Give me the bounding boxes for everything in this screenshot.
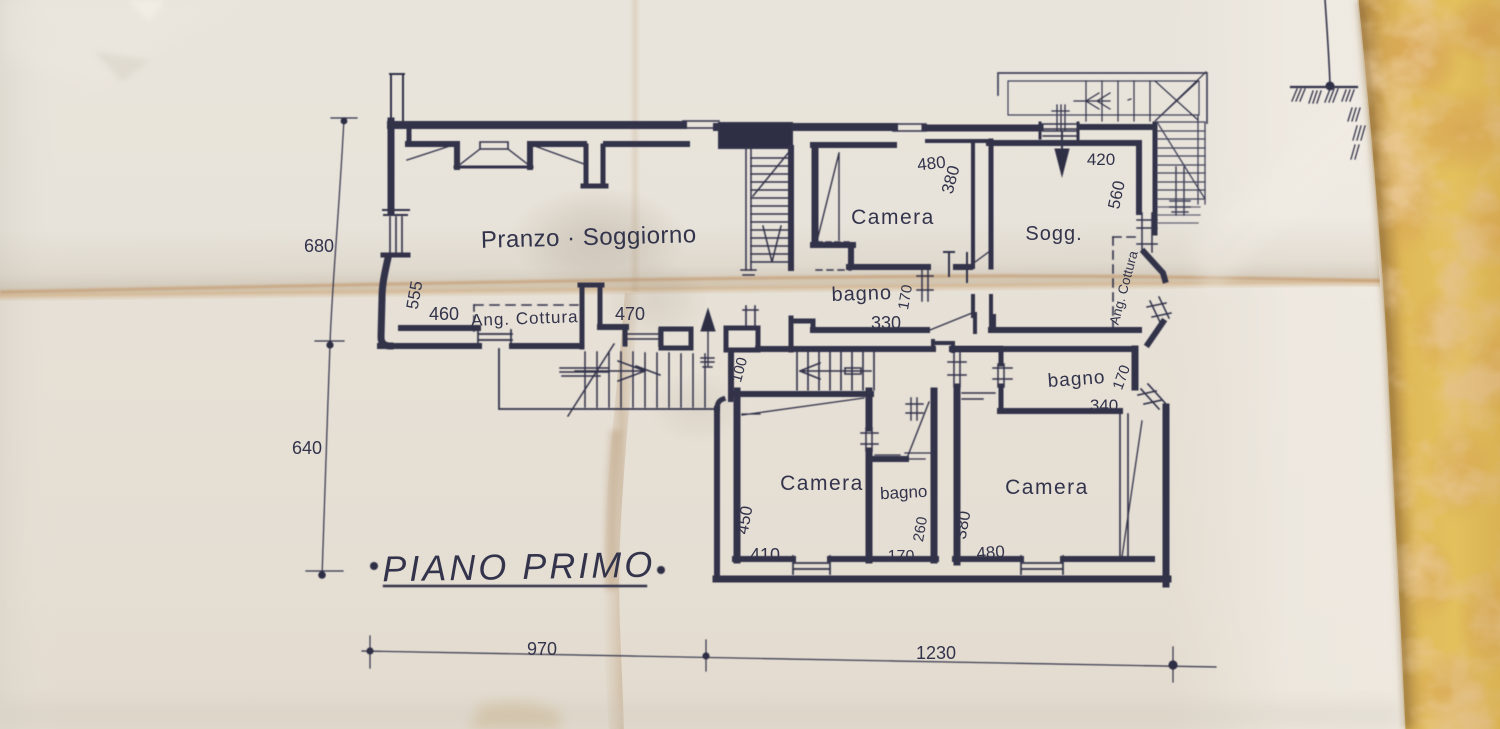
svg-text:bagno: bagno: [831, 282, 892, 306]
svg-text:Ang. Cottura: Ang. Cottura: [471, 307, 579, 330]
svg-text:Camera: Camera: [851, 206, 935, 229]
svg-text:480: 480: [976, 542, 1006, 563]
svg-text:340: 340: [1090, 396, 1118, 415]
svg-text:1230: 1230: [916, 643, 956, 663]
svg-text:Sogg.: Sogg.: [1025, 223, 1082, 245]
svg-text:460: 460: [429, 304, 459, 324]
svg-text:640: 640: [292, 438, 322, 458]
svg-text:PIANO PRIMO: PIANO PRIMO: [382, 544, 656, 590]
svg-text:170: 170: [888, 548, 915, 565]
svg-text:480: 480: [916, 153, 946, 175]
svg-text:bagno: bagno: [880, 482, 928, 503]
svg-text:Camera: Camera: [780, 472, 864, 495]
svg-text:Camera: Camera: [1005, 476, 1089, 499]
svg-text:Pranzo · Soggiorno: Pranzo · Soggiorno: [481, 221, 697, 254]
svg-text:410: 410: [750, 545, 780, 565]
svg-text:680: 680: [304, 236, 334, 256]
svg-text:470: 470: [615, 304, 645, 324]
svg-text:420: 420: [1087, 150, 1115, 169]
svg-text:970: 970: [527, 639, 557, 659]
svg-text:330: 330: [871, 313, 901, 333]
svg-text:bagno: bagno: [1047, 367, 1106, 392]
